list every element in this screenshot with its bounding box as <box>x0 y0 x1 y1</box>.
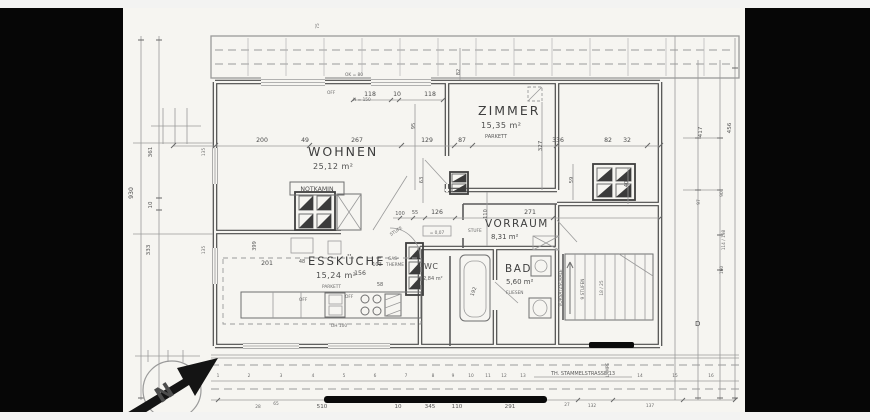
tick-number: 3 <box>280 373 283 379</box>
screenshot-root: WOHNEN 25,12 m² ZIMMER 15,35 m² PARKETT … <box>0 0 870 420</box>
bottom-band <box>211 355 739 389</box>
stg-label: 18 / 25 <box>599 280 605 295</box>
level-label: = 0,07 <box>430 230 445 236</box>
dim-label: 267 <box>351 137 363 144</box>
room-area-wc: 2,84 m² <box>423 276 443 282</box>
dim-label: 110 <box>483 209 489 219</box>
dim-label: 40 <box>624 181 630 187</box>
tick-number: 7 <box>405 373 408 379</box>
street-label: TH. STAMMELSTRASSE 13 <box>550 371 615 377</box>
dim-label: 137 <box>646 403 654 409</box>
gas-therme-label-1: GAS- <box>388 256 399 262</box>
dim-label: 200 <box>256 137 268 144</box>
tick-number: 2 <box>248 373 251 379</box>
dim-label: 160 <box>719 266 725 274</box>
dim-label: 103 <box>372 262 382 268</box>
vorsatzschale-label: VORSATZSCHALE <box>558 269 564 307</box>
dim-label: 291 <box>505 404 516 410</box>
dim-label: 129 <box>421 137 433 144</box>
dim-label: 10 <box>148 201 154 209</box>
dim-label: 95 <box>411 123 417 129</box>
stufe-label-a: STUFE <box>389 225 404 238</box>
dim-label: 49 <box>301 137 309 144</box>
parcel-numbers: 1 2 3 4 5 6 7 8 9 10 11 12 13 14 15 16 <box>217 373 714 379</box>
dim-label: 201 <box>261 260 273 267</box>
chimney-gastherme <box>406 243 423 295</box>
dim-label: 114 / 198 <box>721 229 727 250</box>
off-kitchen-2: OFF <box>345 294 354 300</box>
tick-number: 12 <box>501 373 507 379</box>
stufen-label: 9 STUFEN <box>580 279 586 300</box>
dim-label: 456 <box>727 122 733 133</box>
gas-therme-label-2: THERME <box>385 262 404 268</box>
dim-label: 97 <box>696 199 702 205</box>
chimney-notkamin <box>295 192 361 230</box>
dim-label: 58 <box>377 282 383 288</box>
dim-label: 48 <box>299 259 305 265</box>
tick-number: 10 <box>468 373 474 379</box>
dim-label: 510 <box>317 404 328 410</box>
dim-label: 192 <box>470 286 479 297</box>
dim-label: 10 <box>393 91 401 98</box>
letterbox-bottom <box>0 412 870 420</box>
dim-label: 930 <box>128 187 135 199</box>
dim-label: 271 <box>524 209 536 216</box>
dim-label: 135 <box>201 148 207 156</box>
letterbox-left <box>0 8 123 412</box>
dim-label: 110 <box>452 404 463 410</box>
dim-label: 417 <box>698 126 704 137</box>
dim-label: 132 <box>588 403 596 409</box>
room-floor-esskueche: PARKETT <box>322 284 341 290</box>
room-floor-bad: FLIESEN <box>506 290 524 296</box>
tick-number: 11 <box>485 373 491 379</box>
tick-number: 14 <box>637 373 643 379</box>
d-mark-label: D <box>695 320 700 328</box>
dim-label: 82 <box>604 137 612 144</box>
dim-label: 327 <box>538 140 544 151</box>
tick-number: 13 <box>520 373 526 379</box>
dim-label: 118 <box>364 91 376 98</box>
dim-label: 333 <box>146 244 152 255</box>
dim-label: 10 <box>394 404 402 410</box>
north-arrow-shape <box>125 358 218 412</box>
tick-number: 5 <box>343 373 346 379</box>
stufe-label-b: STUFE <box>468 228 482 234</box>
staircase <box>565 254 653 320</box>
dim-label: 55 <box>412 210 418 216</box>
dim-label: 63 <box>419 177 425 183</box>
tick-number: 6 <box>374 373 377 379</box>
room-area-vorraum: 8,31 m² <box>491 233 519 241</box>
notkamin-label: NOTKAMIN <box>300 186 334 193</box>
dim-label: 32 <box>623 137 631 144</box>
letterbox-right <box>745 8 870 412</box>
letterbox-top <box>0 0 870 8</box>
room-label-wc: WC <box>424 262 439 271</box>
dim-label: 28 <box>255 404 261 410</box>
dh100-label: DH 100 <box>331 323 347 329</box>
room-floor-zimmer: PARKETT <box>485 134 508 140</box>
room-area-esskueche: 15,24 m² <box>316 271 356 280</box>
tick-number: 15 <box>672 373 678 379</box>
off-kitchen-1: OFF <box>299 297 308 303</box>
room-label-wohnen: WOHNEN <box>308 144 378 159</box>
dim-label: 65 <box>273 401 279 407</box>
dim-label: 135 <box>201 246 207 254</box>
tick-number: 8 <box>432 373 435 379</box>
tick-number: 9 <box>452 373 455 379</box>
ok80-label: OK = 80 <box>345 72 363 78</box>
dim-label: 27 <box>564 402 570 408</box>
tick-number: 4 <box>312 373 315 379</box>
doors <box>373 87 577 303</box>
dim-label: 87 <box>458 137 466 144</box>
dim-label: 75 <box>315 23 321 29</box>
room-labels: WOHNEN 25,12 m² ZIMMER 15,35 m² PARKETT … <box>308 103 549 296</box>
north-arrow: N <box>125 358 218 412</box>
floor-plan-scan: WOHNEN 25,12 m² ZIMMER 15,35 m² PARKETT … <box>123 8 745 412</box>
tick-number: 16 <box>708 373 714 379</box>
room-label-vorraum: VORRAUM <box>485 218 549 230</box>
room-area-bad: 5,60 m² <box>506 278 534 286</box>
dim-label: 399 <box>252 241 258 251</box>
dim-label: 118 <box>424 91 436 98</box>
tick-number: 1 <box>217 373 220 379</box>
off-roof-label: OFF <box>327 90 336 96</box>
dim-label: 90 <box>719 191 725 197</box>
dim-label: 126 <box>431 209 443 216</box>
floor-plan-drawing: WOHNEN 25,12 m² ZIMMER 15,35 m² PARKETT … <box>123 8 745 412</box>
redaction-bar-bottom <box>324 396 547 403</box>
dim-label: 361 <box>148 146 154 157</box>
dim-label: 100 <box>395 211 405 217</box>
dim-label: 82 <box>456 69 462 75</box>
room-area-wohnen: 25,12 m² <box>313 162 353 171</box>
dim-label: 336 <box>552 137 564 144</box>
dim-label: 59 <box>569 177 575 183</box>
dim-label: 156 <box>354 270 366 277</box>
room-label-bad: BAD <box>505 263 532 275</box>
room-label-zimmer: ZIMMER <box>478 103 540 118</box>
roof-strip <box>211 36 739 78</box>
room-area-zimmer: 15,35 m² <box>481 121 521 130</box>
redaction-bar-stairs <box>589 342 634 348</box>
dim-label: 345 <box>425 404 436 410</box>
